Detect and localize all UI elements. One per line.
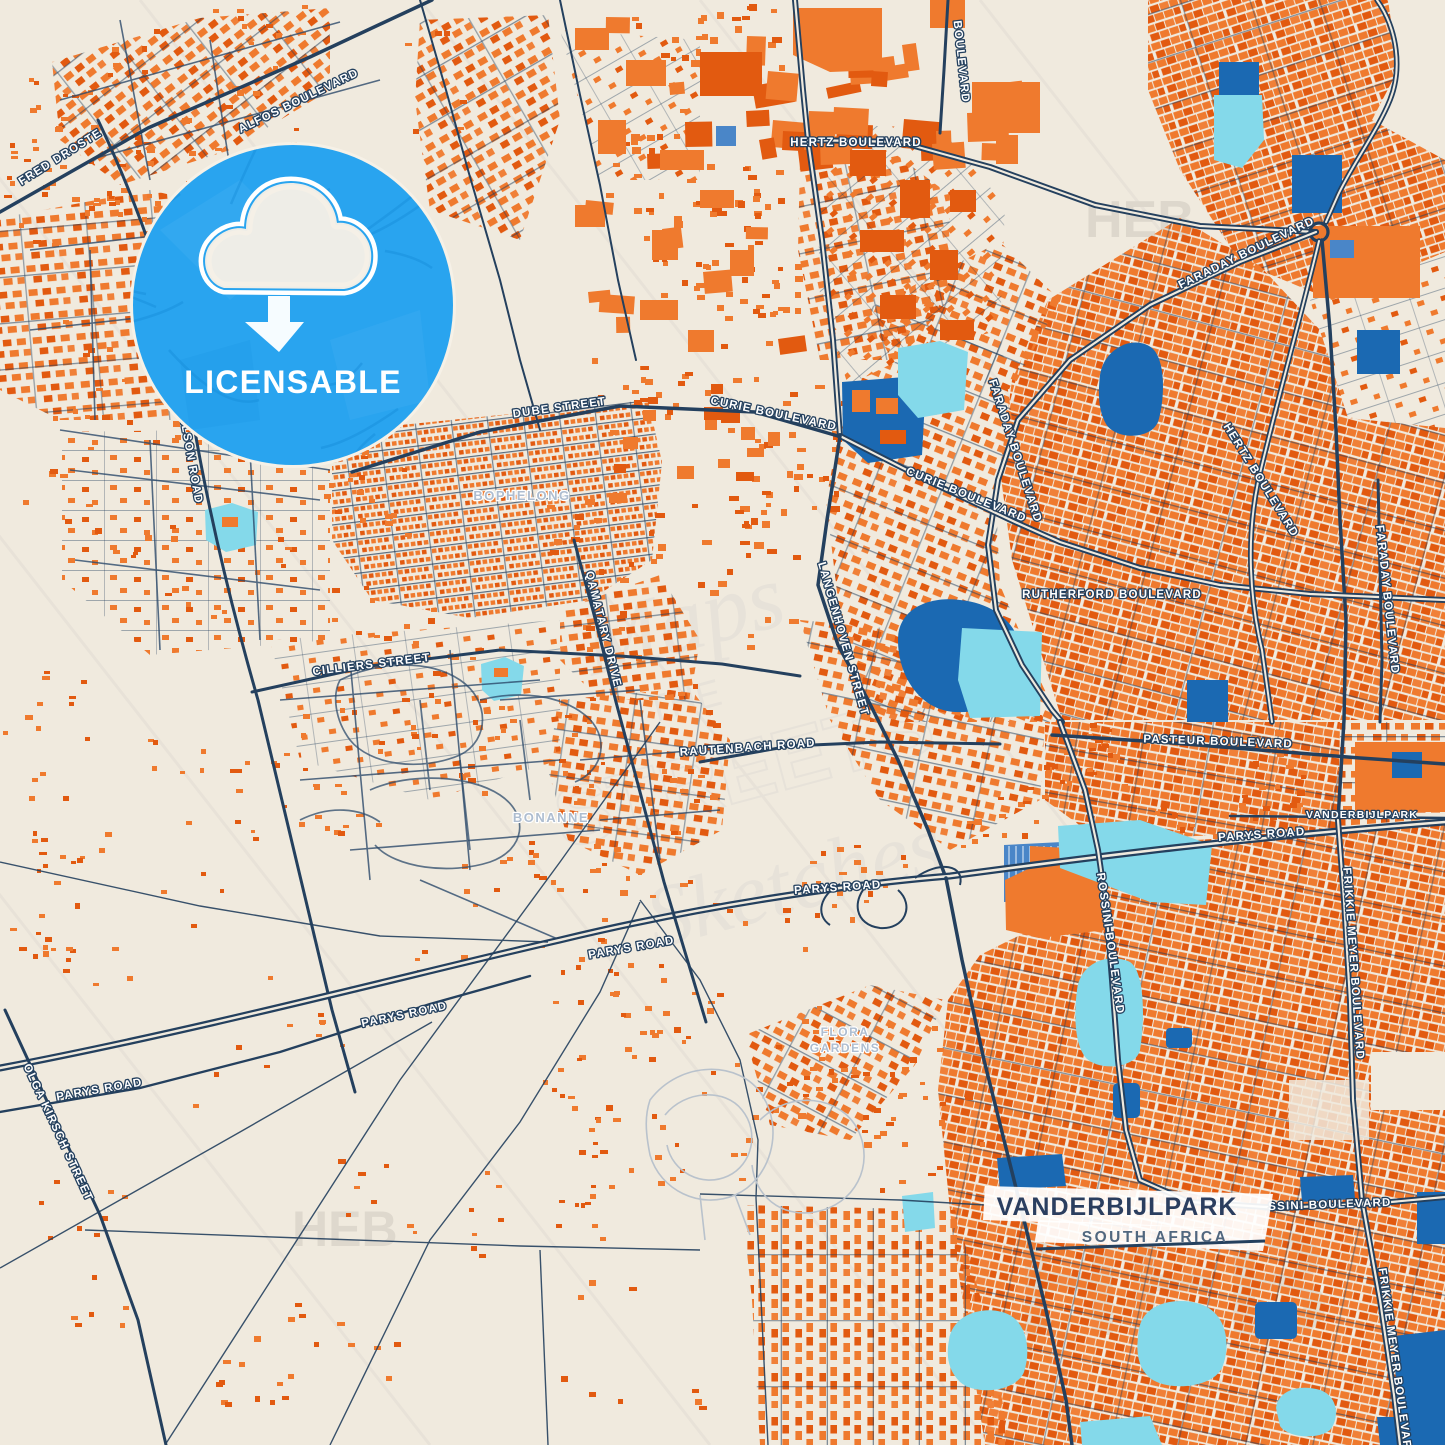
svg-text:VANDERBIJLPARK: VANDERBIJLPARK: [1306, 809, 1418, 821]
svg-text:SOUTH AFRICA: SOUTH AFRICA: [1082, 1229, 1229, 1246]
svg-text:BOPHELONG: BOPHELONG: [473, 488, 570, 503]
svg-text:LICENSABLE: LICENSABLE: [184, 364, 401, 400]
svg-text:VANDERBIJLPARK: VANDERBIJLPARK: [997, 1193, 1238, 1221]
svg-text:FLORA: FLORA: [821, 1025, 870, 1039]
svg-text:HERTZ BOULEVARD: HERTZ BOULEVARD: [790, 137, 922, 149]
svg-text:HEB: HEB: [292, 1201, 398, 1257]
svg-text:RUTHERFORD BOULEVARD: RUTHERFORD BOULEVARD: [1022, 589, 1202, 601]
svg-text:BONANNE: BONANNE: [513, 810, 589, 825]
svg-text:GARDENS: GARDENS: [810, 1041, 881, 1055]
